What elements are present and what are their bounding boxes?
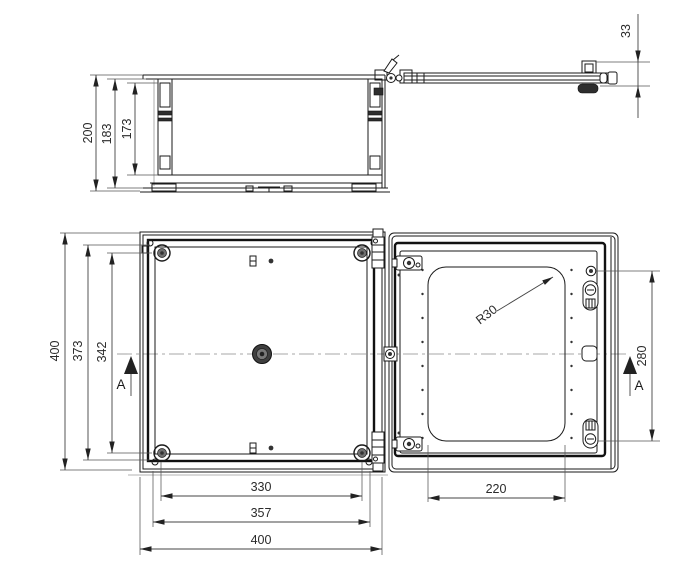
hinge-pin	[389, 76, 392, 79]
lid-inner-lines	[404, 73, 612, 83]
hinge-knuckle	[396, 75, 402, 81]
quarter-turn-latch-bottom	[583, 419, 598, 448]
dim-label-400-width: 400	[251, 533, 272, 547]
door-view-dimensions: R30 280 220 A	[428, 271, 660, 502]
hinge-plate-bottom	[372, 432, 384, 471]
open-lid	[374, 55, 617, 95]
door-inside-view	[384, 233, 618, 472]
latch-catch	[578, 84, 598, 93]
wall-insert	[160, 83, 170, 107]
body-shell-outline	[143, 75, 385, 188]
section-arrow-a-left: A	[116, 356, 138, 396]
dim-label-173: 173	[120, 119, 134, 140]
hinge-lever-tip	[393, 55, 399, 60]
door-hinge-mid	[384, 347, 397, 361]
seal-band	[368, 118, 382, 121]
latch-block	[582, 61, 596, 73]
dim-label-400-height: 400	[48, 341, 62, 362]
door-bolt	[586, 266, 596, 276]
center-boss	[253, 345, 272, 364]
dim-label-220: 220	[486, 482, 507, 496]
wall-insert	[160, 156, 170, 169]
back-panel-view	[128, 229, 388, 475]
enclosure-drawing: 200 183 173 33	[0, 0, 700, 579]
latch-pin	[600, 73, 607, 83]
technical-drawing-page: 200 183 173 33	[0, 0, 700, 579]
door-dot-pattern	[421, 269, 572, 439]
lid-panel	[404, 73, 612, 83]
wall-insert	[370, 156, 380, 169]
seal-band	[368, 111, 382, 115]
dim-label-357: 357	[251, 506, 272, 520]
seal-band	[158, 111, 172, 115]
door-hinge-bracket-top	[392, 256, 422, 277]
back-view-dimensions: 400 373 342 330 357 400 A	[48, 233, 382, 555]
latch-cutout-mid	[582, 346, 597, 361]
seal-band	[158, 118, 172, 121]
door-hinge-bracket-bottom	[392, 432, 422, 452]
quarter-turn-latch-top	[583, 281, 598, 310]
section-label-a-right: A	[634, 378, 643, 393]
radius-label: R30	[473, 302, 500, 327]
dim-label-183: 183	[100, 124, 114, 145]
dim-label-200: 200	[81, 123, 95, 144]
side-view-dimensions: 200 183 173 33	[81, 14, 650, 191]
hinge-plate-top	[372, 229, 384, 268]
hinge-lever	[384, 59, 397, 73]
dim-label-33: 33	[619, 24, 633, 38]
door-panel	[400, 251, 597, 453]
base-mount-detail	[246, 186, 292, 192]
latch-end-cap	[608, 72, 617, 84]
r30-leader: R30	[473, 275, 554, 328]
mount-slot-bottom	[250, 443, 273, 453]
door-frame	[395, 243, 605, 456]
dim-label-280: 280	[635, 346, 649, 367]
hinge-catch	[374, 88, 383, 95]
section-label-a-left: A	[116, 377, 125, 392]
side-section-view	[140, 75, 390, 192]
dim-label-342: 342	[95, 342, 109, 363]
mount-slot-top	[250, 256, 273, 266]
dim-label-373: 373	[71, 341, 85, 362]
dim-label-330: 330	[251, 480, 272, 494]
